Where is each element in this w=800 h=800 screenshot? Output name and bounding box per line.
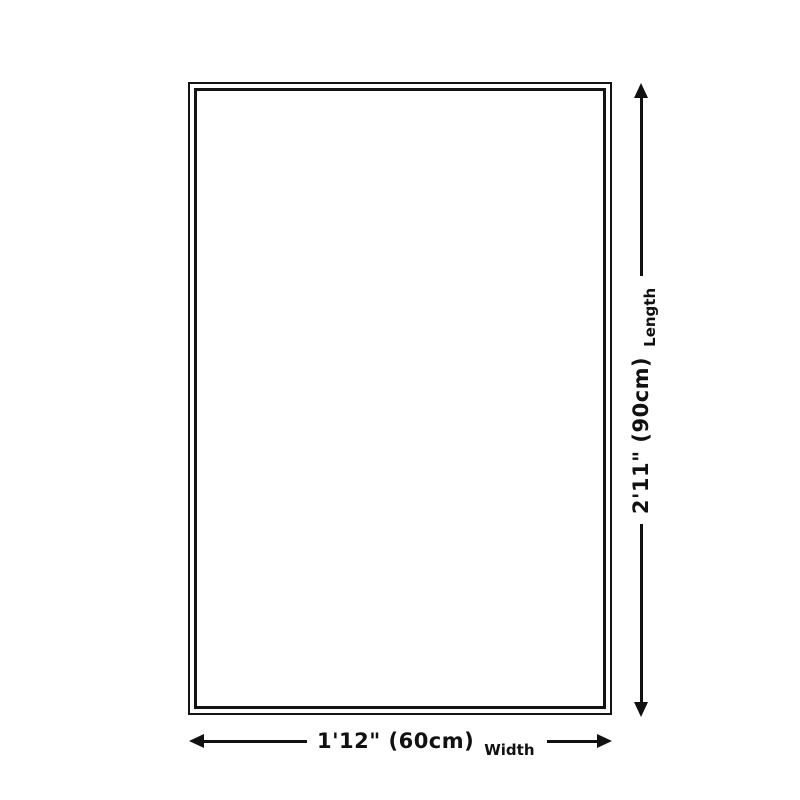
- width-label: Width: [484, 741, 534, 759]
- width-dimension-line: [547, 740, 599, 743]
- arrow-down-icon: [634, 702, 648, 717]
- length-label: Length: [641, 288, 659, 347]
- arrow-right-icon: [597, 734, 612, 748]
- length-dimension: 2'11" (90cm) Length: [627, 83, 655, 717]
- width-dimension-line: [202, 740, 307, 743]
- width-value: 1'12" (60cm): [317, 729, 474, 753]
- arrow-up-icon: [634, 83, 648, 98]
- length-dimension-line: [640, 96, 643, 276]
- length-dimension-line: [640, 524, 643, 704]
- length-value: 2'11" (90cm): [629, 357, 653, 514]
- product-dimension-diagram: 2'11" (90cm) Length 1'12" (60cm) Width: [0, 0, 800, 800]
- rug-inner-border: [194, 88, 606, 709]
- width-dimension: 1'12" (60cm) Width: [189, 727, 612, 755]
- rug-outline: [188, 82, 612, 715]
